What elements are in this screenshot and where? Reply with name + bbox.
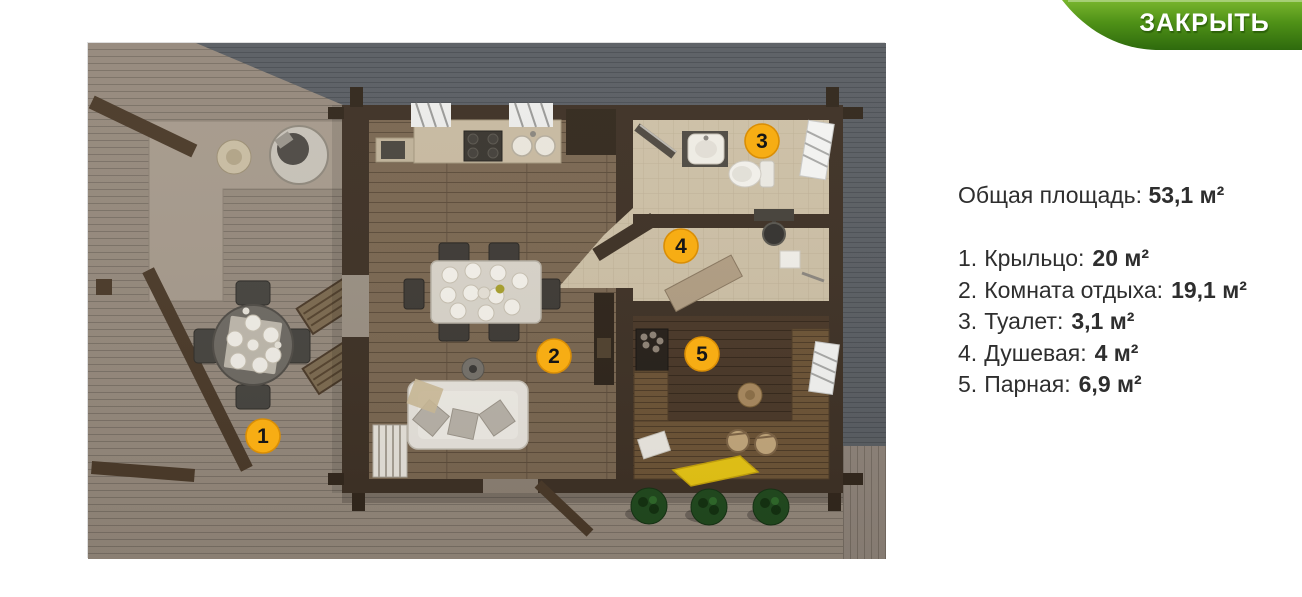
legend-row-lounge: 2.Комната отдыха:19,1 м² xyxy=(958,275,1247,307)
legend-row-toilet: 3.Туалет:3,1 м² xyxy=(958,306,1247,338)
close-button[interactable]: ЗАКРЫТЬ xyxy=(1062,0,1302,50)
legend-row-area: 3,1 м² xyxy=(1071,308,1134,334)
page: ЗАКРЫТЬ xyxy=(0,0,1302,597)
close-button-label: ЗАКРЫТЬ xyxy=(1107,0,1302,46)
legend-row-area: 6,9 м² xyxy=(1079,371,1142,397)
legend-row-name: Душевая: xyxy=(984,340,1086,366)
legend-row-area: 4 м² xyxy=(1095,340,1139,366)
legend: 1.Крыльцо:20 м² 2.Комната отдыха:19,1 м²… xyxy=(958,243,1247,401)
legend-row-number: 5. xyxy=(958,371,977,397)
legend-row-name: Комната отдыха: xyxy=(984,277,1163,303)
total-area-value: 53,1 м² xyxy=(1148,182,1224,208)
svg-text:3: 3 xyxy=(756,130,768,153)
total-area-label: Общая площадь: xyxy=(958,182,1142,208)
legend-row-number: 2. xyxy=(958,277,977,303)
legend-row-area: 19,1 м² xyxy=(1171,277,1247,303)
legend-row-porch: 1.Крыльцо:20 м² xyxy=(958,243,1247,275)
floorplan-image: 1 2 3 4 5 xyxy=(87,42,885,558)
room-marker-5: 5 xyxy=(685,337,719,371)
svg-text:5: 5 xyxy=(696,343,708,366)
legend-row-name: Туалет: xyxy=(984,308,1063,334)
room-marker-1: 1 xyxy=(246,419,280,453)
floorplan-svg: 1 2 3 4 5 xyxy=(88,43,886,559)
svg-text:4: 4 xyxy=(675,235,687,258)
room-marker-3: 3 xyxy=(745,124,779,158)
legend-row-number: 4. xyxy=(958,340,977,366)
total-area: Общая площадь: 53,1 м² xyxy=(958,182,1224,209)
legend-row-area: 20 м² xyxy=(1092,245,1149,271)
svg-text:1: 1 xyxy=(257,425,269,448)
legend-row-number: 1. xyxy=(958,245,977,271)
legend-row-name: Крыльцо: xyxy=(984,245,1084,271)
legend-row-number: 3. xyxy=(958,308,977,334)
room-marker-4: 4 xyxy=(664,229,698,263)
legend-row-name: Парная: xyxy=(984,371,1070,397)
legend-row-shower: 4.Душевая:4 м² xyxy=(958,338,1247,370)
svg-text:2: 2 xyxy=(548,345,560,368)
room-marker-2: 2 xyxy=(537,339,571,373)
legend-row-steam: 5.Парная:6,9 м² xyxy=(958,369,1247,401)
